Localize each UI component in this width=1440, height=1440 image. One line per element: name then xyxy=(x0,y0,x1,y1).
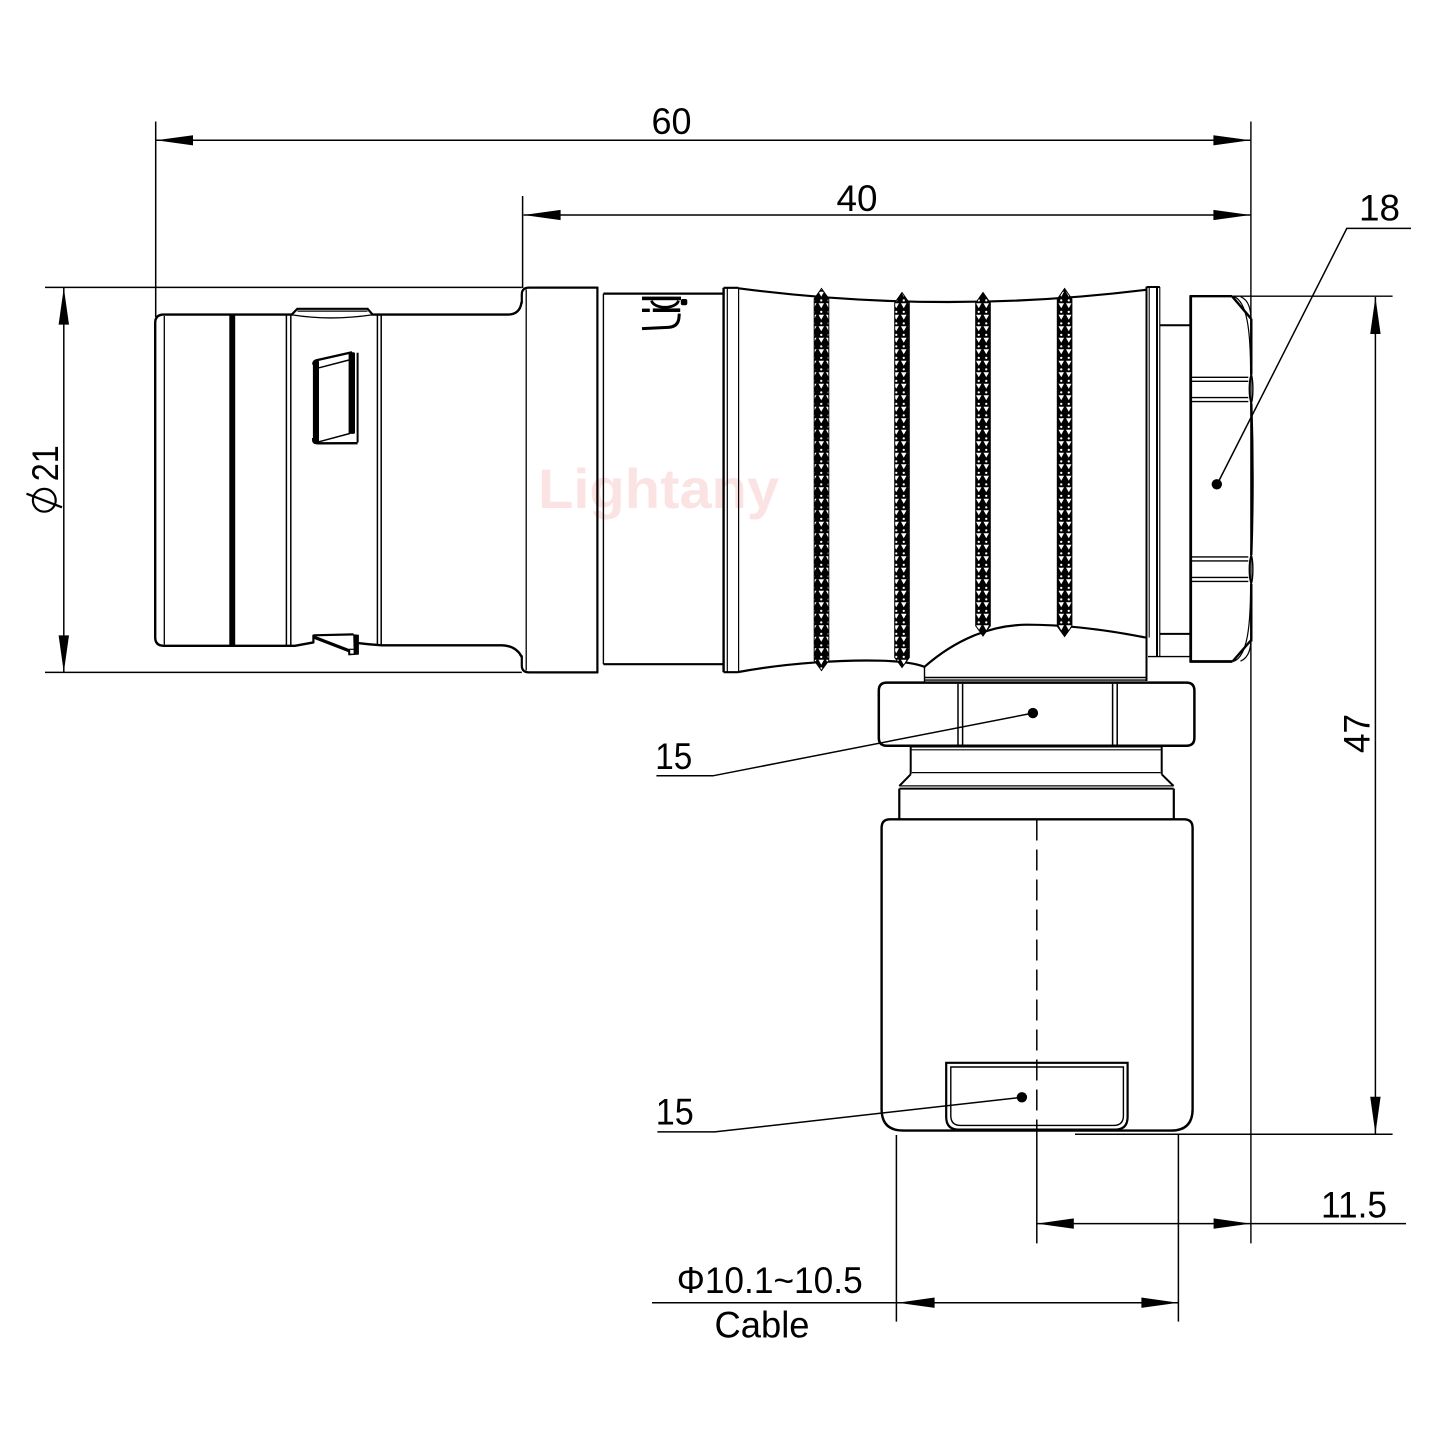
svg-text:47: 47 xyxy=(1336,714,1377,753)
svg-text:40: 40 xyxy=(837,178,878,219)
svg-text:18: 18 xyxy=(1359,188,1400,229)
svg-text:15: 15 xyxy=(655,736,692,777)
svg-text:15: 15 xyxy=(656,1091,694,1132)
svg-text:60: 60 xyxy=(652,101,692,142)
svg-text:Lightany: Lightany xyxy=(538,457,779,520)
svg-text:Φ10.1~10.5: Φ10.1~10.5 xyxy=(677,1260,863,1301)
svg-text:21: 21 xyxy=(25,445,66,481)
svg-text:Cable: Cable xyxy=(715,1304,810,1345)
svg-text:11.5: 11.5 xyxy=(1321,1184,1387,1225)
